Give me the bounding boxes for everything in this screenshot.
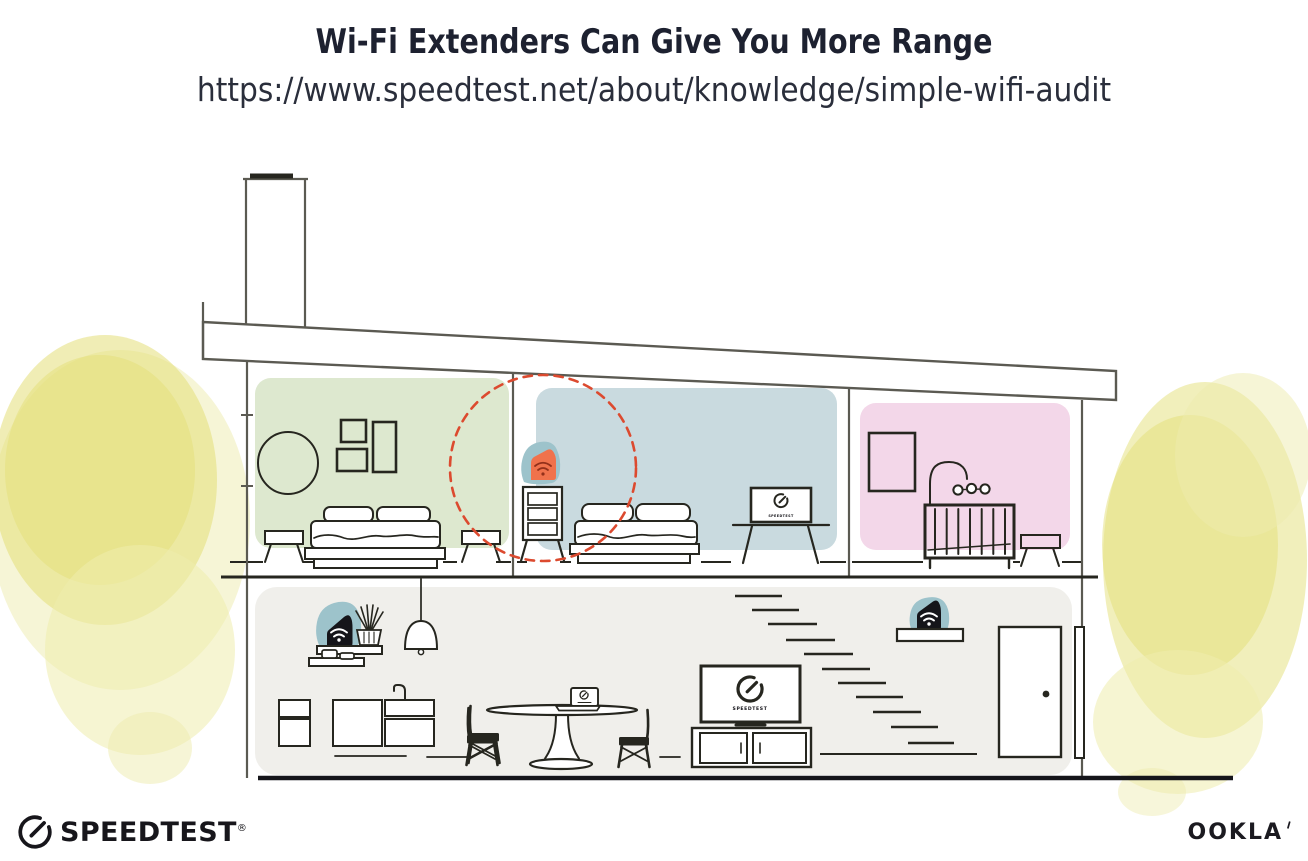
tv-screen [701,666,800,722]
tv-screen-label: SPEEDTEST [768,514,794,518]
tree-right [1093,373,1308,816]
speedtest-logo: SPEEDTEST® [18,815,247,849]
wifi-extender-upstairs [521,442,560,485]
tv-living: SPEEDTEST [692,666,811,767]
ookla-wordmark: OOKLA [1188,820,1284,845]
registered-mark: ® [237,823,247,834]
ookla-logo: OOKLA [1188,820,1293,845]
trademark-tick [1285,821,1292,831]
room-pink-wall [860,403,1070,550]
cup [322,650,337,658]
front-door [999,627,1061,757]
door-frame-strip [1075,627,1084,758]
house-illustration: SPEEDTEST [0,0,1308,861]
speedtest-wordmark: SPEEDTEST® [60,817,247,848]
chimney [243,176,308,331]
table-base [530,759,592,769]
stool [1021,535,1060,566]
tree-left [0,335,250,784]
cup [340,653,354,659]
speedtest-gauge-icon [18,815,52,849]
shelf [897,629,963,641]
media-console [692,728,811,767]
shelf [309,658,364,666]
door-knob [1043,691,1050,698]
tv-screen-label: SPEEDTEST [733,706,768,712]
